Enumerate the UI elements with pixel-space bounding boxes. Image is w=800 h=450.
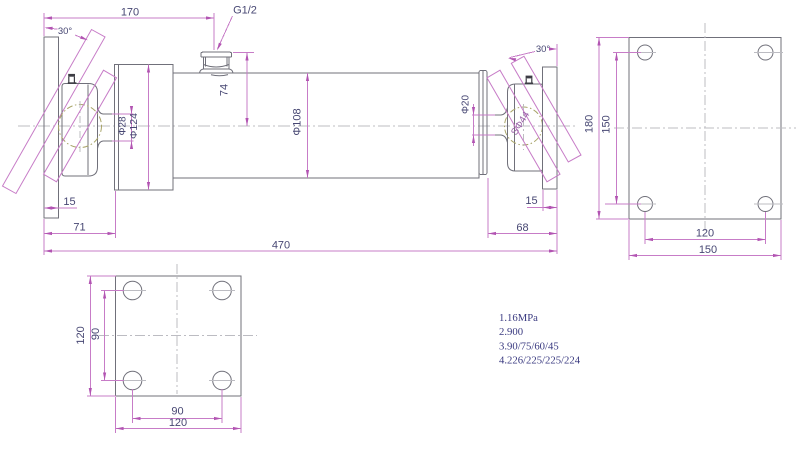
svg-text:Φ20: Φ20 bbox=[461, 95, 472, 115]
svg-text:30°: 30° bbox=[58, 26, 73, 37]
svg-text:Φ124: Φ124 bbox=[128, 113, 140, 139]
svg-text:90: 90 bbox=[90, 328, 102, 340]
svg-text:180: 180 bbox=[584, 115, 596, 133]
svg-text:120: 120 bbox=[696, 228, 714, 240]
svg-text:3.90/75/60/45: 3.90/75/60/45 bbox=[499, 340, 559, 352]
svg-text:1.16MPa: 1.16MPa bbox=[499, 312, 538, 324]
svg-text:68: 68 bbox=[516, 222, 528, 234]
svg-text:74: 74 bbox=[219, 84, 231, 96]
svg-text:170: 170 bbox=[121, 7, 139, 19]
svg-text:90: 90 bbox=[171, 406, 183, 418]
svg-text:150: 150 bbox=[699, 244, 717, 256]
svg-text:470: 470 bbox=[272, 240, 290, 252]
svg-text:15: 15 bbox=[63, 196, 75, 208]
svg-text:71: 71 bbox=[73, 222, 85, 234]
svg-text:G1/2: G1/2 bbox=[233, 5, 257, 17]
svg-text:120: 120 bbox=[169, 417, 187, 429]
svg-text:Φ108: Φ108 bbox=[292, 108, 304, 135]
svg-text:120: 120 bbox=[75, 326, 87, 344]
svg-text:150: 150 bbox=[601, 115, 613, 133]
svg-text:15: 15 bbox=[525, 195, 537, 207]
svg-text:Φ28: Φ28 bbox=[118, 116, 129, 136]
svg-text:4.226/225/225/224: 4.226/225/225/224 bbox=[499, 355, 581, 367]
svg-text:30°: 30° bbox=[536, 44, 551, 55]
svg-text:2.900: 2.900 bbox=[499, 326, 523, 338]
